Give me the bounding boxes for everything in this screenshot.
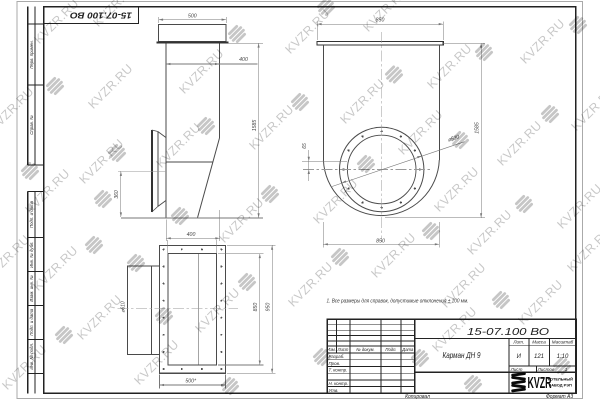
svg-text:ЗАВОД РЭП: ЗАВОД РЭП	[549, 382, 572, 387]
svg-text:950: 950	[265, 303, 271, 312]
svg-text:65: 65	[302, 143, 308, 149]
svg-text:Копировал: Копировал	[405, 394, 430, 400]
svg-text:КОТЕЛЬНЫЙ: КОТЕЛЬНЫЙ	[548, 377, 574, 382]
svg-text:Утв.: Утв.	[329, 388, 339, 393]
svg-text:15-07.100 ВО: 15-07.100 ВО	[467, 327, 549, 338]
svg-text:Взам. инв. №: Взам. инв. №	[29, 275, 34, 302]
svg-text:Н. контр.: Н. контр.	[329, 381, 349, 386]
svg-text:1585: 1585	[252, 120, 258, 132]
svg-text:Масштаб: Масштаб	[552, 339, 574, 344]
svg-text:Лит.: Лит.	[512, 339, 524, 344]
svg-text:500: 500	[188, 14, 197, 20]
svg-text:Формат А3: Формат А3	[546, 394, 574, 400]
svg-text:500*: 500*	[185, 379, 197, 385]
svg-text:Лист: Лист	[510, 367, 523, 372]
svg-text:1585: 1585	[474, 122, 480, 134]
svg-text:Лист: Лист	[337, 347, 349, 352]
svg-text:Листов: Листов	[537, 367, 555, 372]
svg-text:Т. контр.: Т. контр.	[329, 368, 348, 373]
svg-text:Инв. № дубл.: Инв. № дубл.	[29, 241, 34, 267]
svg-text:Справ. №: Справ. №	[29, 115, 34, 135]
svg-text:850: 850	[253, 303, 259, 312]
svg-text:400: 400	[187, 232, 196, 238]
svg-text:121: 121	[534, 354, 544, 360]
svg-text:Дата: Дата	[401, 347, 414, 352]
svg-text:Изм.: Изм.	[327, 347, 336, 352]
svg-text:Масса: Масса	[532, 339, 546, 344]
svg-text:Перв. примен.: Перв. примен.	[29, 40, 34, 69]
svg-text:850: 850	[376, 238, 385, 244]
svg-text:Карман ДН 9: Карман ДН 9	[443, 351, 481, 360]
svg-text:И: И	[517, 354, 522, 360]
svg-text:№ докум.: № докум.	[356, 347, 374, 352]
svg-text:Подп.: Подп.	[385, 347, 396, 352]
svg-text:Пров.: Пров.	[329, 361, 341, 366]
svg-text:400: 400	[239, 57, 248, 63]
svg-text:360: 360	[114, 190, 120, 199]
svg-text:Подп. и дата: Подп. и дата	[29, 308, 34, 336]
